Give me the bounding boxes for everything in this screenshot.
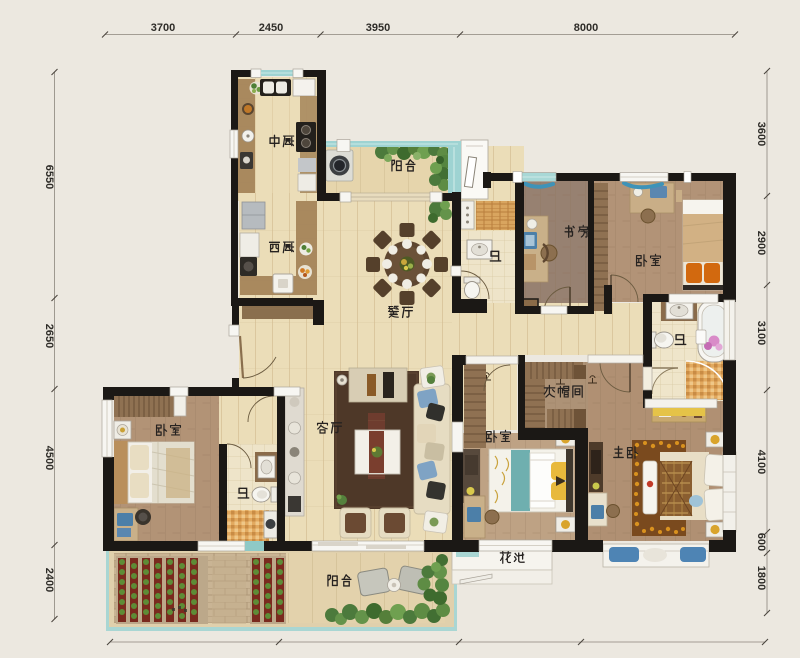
- svg-text:3600: 3600: [755, 122, 767, 146]
- svg-text:3700: 3700: [151, 22, 175, 34]
- svg-text:3100: 3100: [755, 321, 767, 345]
- svg-text:4500: 4500: [43, 446, 55, 470]
- svg-text:2900: 2900: [755, 231, 767, 255]
- svg-text:3950: 3950: [366, 22, 390, 34]
- svg-text:2400: 2400: [43, 568, 55, 592]
- svg-text:1800: 1800: [755, 566, 767, 590]
- svg-text:6550: 6550: [43, 165, 55, 189]
- svg-text:2650: 2650: [43, 324, 55, 348]
- svg-text:8000: 8000: [574, 22, 598, 34]
- svg-text:2450: 2450: [259, 22, 283, 34]
- svg-text:600: 600: [755, 533, 767, 551]
- svg-text:4100: 4100: [755, 450, 767, 474]
